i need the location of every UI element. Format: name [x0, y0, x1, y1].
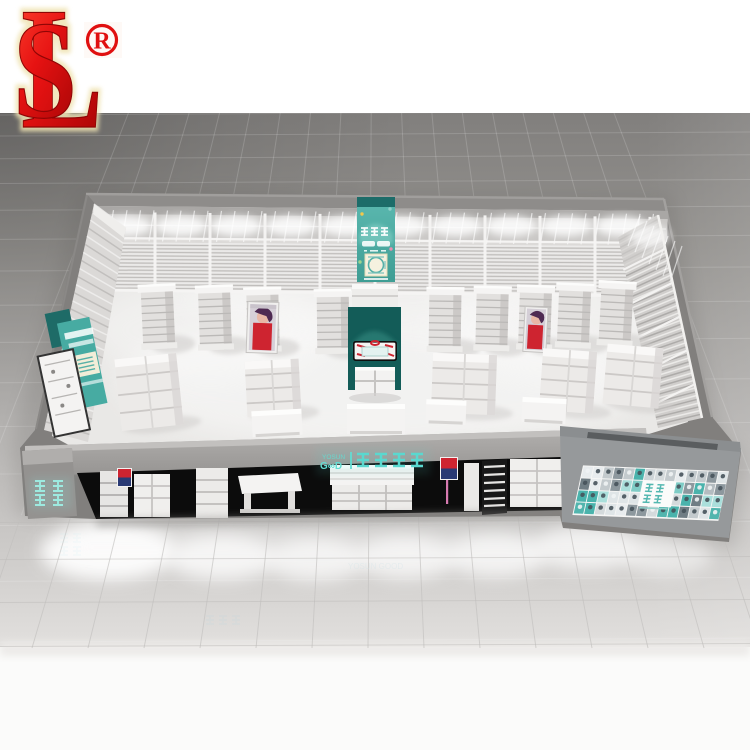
svg-text:YOSUN GOOD: YOSUN GOOD	[348, 562, 403, 571]
svg-text:YOSUN: YOSUN	[322, 454, 345, 461]
svg-text:R: R	[93, 29, 111, 55]
svg-text:S: S	[13, 0, 77, 148]
svg-text:G∞D: G∞D	[320, 461, 342, 472]
